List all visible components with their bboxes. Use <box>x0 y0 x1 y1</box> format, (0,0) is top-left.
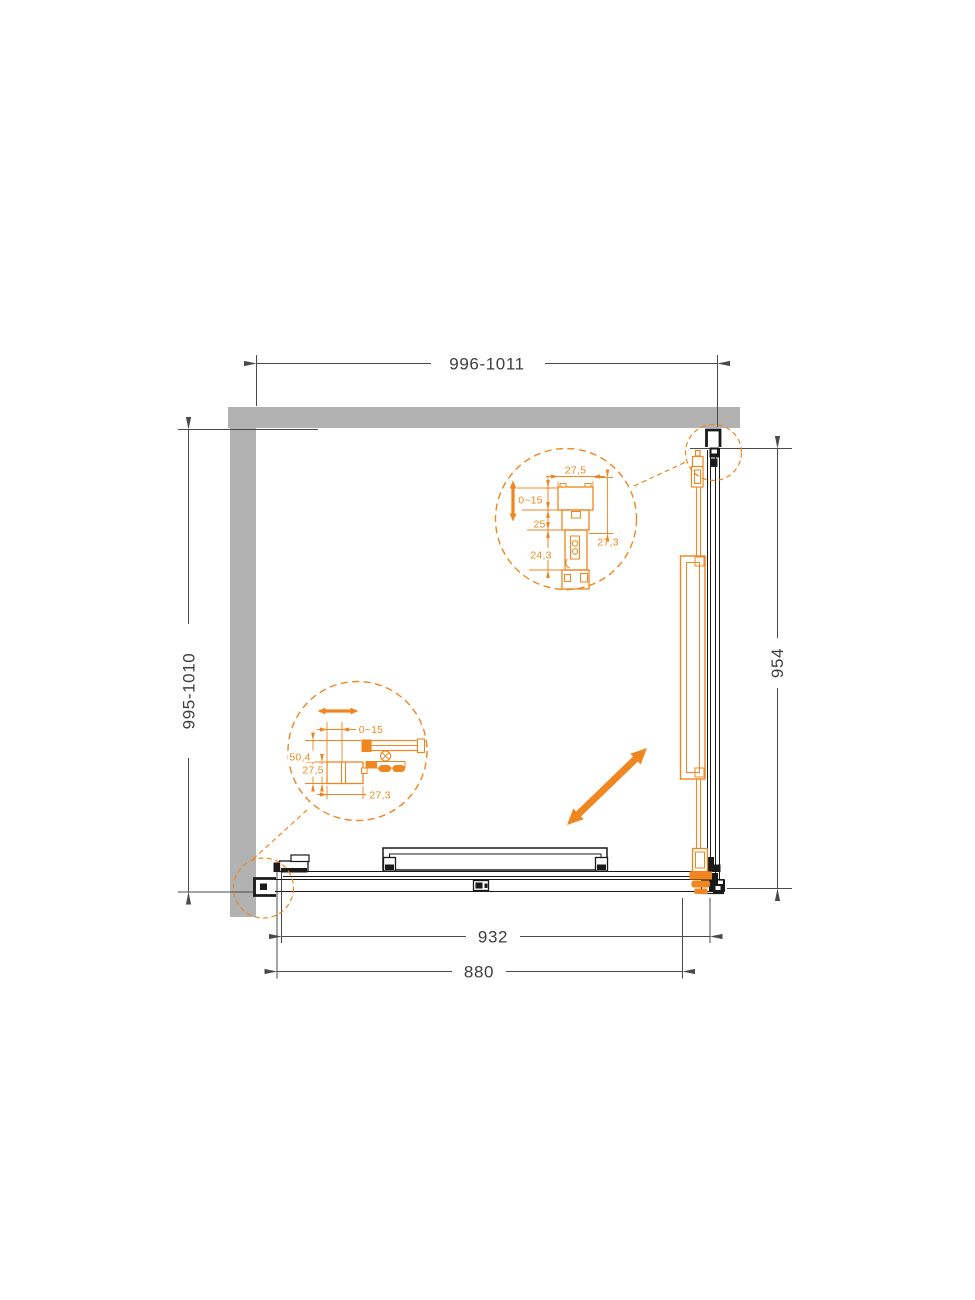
detail-bottom-label-adjustment: 0~15 <box>359 724 383 736</box>
dim-label-door-bottom: 880 <box>464 963 494 982</box>
detail-bottom-profile-section: 0~15 50,4 27,5 27,3 <box>288 708 425 802</box>
bottom-rail <box>275 872 725 892</box>
detail-bottom-label-profile: 27,5 <box>302 765 323 777</box>
door-top-guide <box>692 451 704 488</box>
vertical-adjust-arrow-icon <box>510 481 517 522</box>
dim-label-width-top: 996-1011 <box>449 355 524 374</box>
walls <box>228 407 740 917</box>
detail-bottom-label-width: 27,3 <box>369 790 390 802</box>
dim-label-track-bottom: 932 <box>478 928 508 947</box>
fixed-panel-right <box>708 448 720 880</box>
dim-label-depth-right: 954 <box>768 648 787 678</box>
detail-top-label-adjustment: 0~15 <box>518 495 542 507</box>
callout-leader-top <box>634 461 688 486</box>
detail-top-label-inner: 25 <box>533 519 545 531</box>
detail-top-profile-section: 27,5 0~15 25 24,3 27,3 <box>510 465 619 590</box>
dim-label-depth-left: 995-1010 <box>180 653 199 730</box>
technical-drawing-page: 996-1011 995-1010 954 932 880 <box>0 0 975 1300</box>
sliding-panel-bottom <box>383 848 608 871</box>
detail-top-label-profile-width: 27,5 <box>565 465 586 477</box>
detail-callouts <box>234 425 742 919</box>
shower-enclosure-plan-drawing: 996-1011 995-1010 954 932 880 <box>0 0 975 1300</box>
callout-leader-bottom <box>252 810 307 860</box>
top-wall <box>228 407 740 428</box>
detail-bottom-label-total: 50,4 <box>289 752 310 764</box>
left-wall <box>230 407 256 917</box>
slide-direction-arrow-icon <box>567 748 647 825</box>
detail-top-label-total: 27,3 <box>597 537 618 549</box>
dimension-bottom-track: 932 <box>282 872 711 947</box>
rail-center-bracket <box>474 881 489 891</box>
detail-top-label-lower: 24,3 <box>530 550 551 562</box>
door-panel-right <box>681 556 706 779</box>
horizontal-adjust-arrow-icon <box>318 708 359 715</box>
